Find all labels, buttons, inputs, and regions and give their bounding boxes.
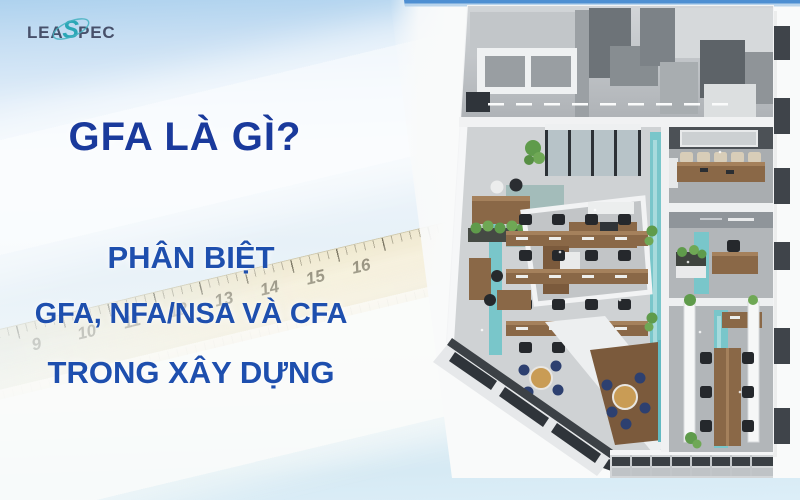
- private-office: [669, 212, 773, 298]
- banner: 910111213141516: [0, 0, 800, 500]
- meeting-room: [669, 127, 773, 203]
- logo-text-pec: PEC: [78, 23, 115, 42]
- rooftop-structures: [459, 6, 773, 127]
- ceiling-lights: [488, 103, 728, 106]
- right-rooms: [661, 127, 773, 452]
- window-facade: [610, 450, 773, 478]
- glass-entry-doors: [545, 124, 641, 176]
- skylight: [477, 48, 577, 94]
- logo-s-mark: S: [62, 16, 79, 45]
- logo-s-letter: S: [62, 16, 79, 44]
- headline: GFA LÀ GÌ?: [0, 113, 370, 161]
- subheadline-line-1: PHÂN BIỆT: [2, 240, 380, 276]
- subheadline-line-2: GFA, NFA/NSA VÀ CFA: [2, 298, 380, 331]
- subheadline-line-3: TRONG XÂY DỰNG: [2, 355, 380, 391]
- leaspec-logo: LEASPEC: [27, 16, 115, 45]
- workstation-area: [669, 294, 773, 452]
- logo-text-lea: LEA: [27, 23, 63, 42]
